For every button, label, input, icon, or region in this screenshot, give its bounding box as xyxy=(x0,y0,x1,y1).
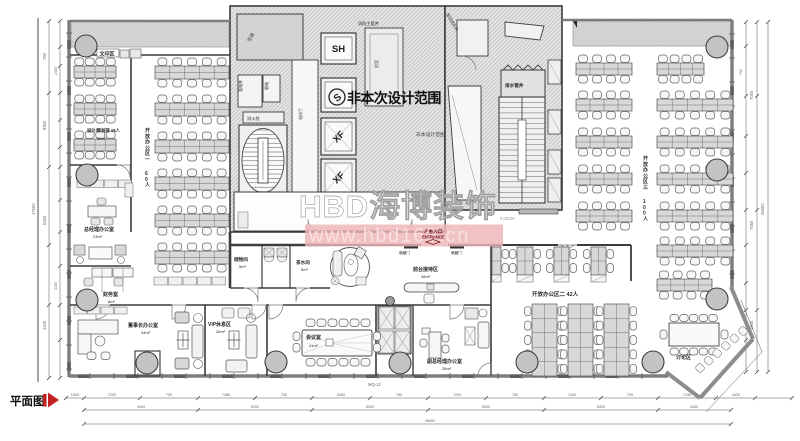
svg-text:电梯厅: 电梯厅 xyxy=(297,108,303,120)
svg-text:45600: 45600 xyxy=(425,419,436,423)
svg-text:750: 750 xyxy=(42,52,47,60)
svg-text:前室: 前室 xyxy=(373,60,379,68)
svg-text:44m²: 44m² xyxy=(141,330,151,335)
svg-text:8m²: 8m² xyxy=(108,299,116,304)
svg-text:消火栓: 消火栓 xyxy=(247,115,260,122)
svg-text:750: 750 xyxy=(739,69,743,75)
svg-text:文印区: 文印区 xyxy=(100,51,115,58)
svg-text:VIP休息区: VIP休息区 xyxy=(208,321,231,328)
svg-text:7486: 7486 xyxy=(222,393,230,397)
svg-text:www.hbd168.cn: www.hbd168.cn xyxy=(308,225,470,247)
svg-text:SH: SH xyxy=(332,44,345,55)
svg-text:消防主管井: 消防主管井 xyxy=(358,20,379,27)
svg-text:5.00UM: 5.00UM xyxy=(500,216,515,221)
svg-text:4430: 4430 xyxy=(690,405,698,409)
svg-text:4400: 4400 xyxy=(42,320,47,330)
svg-text:会议室: 会议室 xyxy=(305,334,321,341)
svg-text:8300: 8300 xyxy=(597,405,605,409)
svg-text:讨论区: 讨论区 xyxy=(676,354,691,361)
svg-text:前台接待区: 前台接待区 xyxy=(413,266,438,273)
svg-text:8300: 8300 xyxy=(42,120,47,130)
svg-text:强电井: 强电井 xyxy=(237,80,243,92)
svg-text:开放办公区二 42人: 开放办公区二 42人 xyxy=(532,290,579,298)
svg-text:董事长办公室: 董事长办公室 xyxy=(128,322,158,329)
svg-text:7400: 7400 xyxy=(568,393,576,397)
svg-text:排水管井: 排水管井 xyxy=(505,82,524,89)
svg-text:储物间: 储物间 xyxy=(234,256,248,263)
svg-text:39m²: 39m² xyxy=(97,136,107,141)
svg-text:700: 700 xyxy=(166,393,172,397)
svg-text:1500: 1500 xyxy=(71,393,79,397)
svg-text:5m²: 5m² xyxy=(239,264,247,269)
svg-text:8300: 8300 xyxy=(482,405,490,409)
svg-text:7200: 7200 xyxy=(453,393,461,397)
svg-text:3150: 3150 xyxy=(54,282,58,290)
svg-text:4430: 4430 xyxy=(732,393,740,397)
svg-text:28m²: 28m² xyxy=(442,366,452,371)
svg-text:2450: 2450 xyxy=(54,67,58,75)
svg-text:8300: 8300 xyxy=(366,405,374,409)
svg-text:700: 700 xyxy=(627,393,633,397)
svg-text:HBD海博装饰: HBD海博装饰 xyxy=(299,189,497,224)
svg-text:MQ-12: MQ-12 xyxy=(368,382,381,387)
svg-text:开放办公区一: 开放办公区一 xyxy=(144,127,151,163)
svg-text:5m²: 5m² xyxy=(301,267,309,272)
svg-text:ENTRANCE: ENTRANCE xyxy=(422,235,444,240)
svg-text:23m²: 23m² xyxy=(93,234,103,239)
svg-text:弱电: 弱电 xyxy=(263,82,269,90)
svg-text:6450: 6450 xyxy=(337,393,345,397)
svg-text:暗藏门: 暗藏门 xyxy=(451,250,462,255)
svg-text:7050: 7050 xyxy=(749,90,754,100)
svg-text:7200: 7200 xyxy=(108,393,116,397)
svg-text:45m²: 45m² xyxy=(421,274,431,279)
svg-text:非本次设计范围: 非本次设计范围 xyxy=(347,90,441,106)
svg-text:副总经理办公室: 副总经理办公室 xyxy=(427,358,462,365)
svg-text:非本设计范围: 非本设计范围 xyxy=(416,131,445,138)
svg-text:47600: 47600 xyxy=(31,203,36,215)
svg-text:平面图: 平面图 xyxy=(10,394,45,408)
svg-text:茶水间: 茶水间 xyxy=(295,259,310,266)
svg-text:750: 750 xyxy=(281,393,287,397)
svg-text:6450: 6450 xyxy=(42,215,47,225)
svg-text:45600: 45600 xyxy=(760,203,765,215)
svg-text:暗藏门: 暗藏门 xyxy=(399,250,410,255)
svg-text:7050: 7050 xyxy=(749,220,754,230)
svg-text:41m²: 41m² xyxy=(309,343,319,348)
svg-text:设计/策划部 18人: 设计/策划部 18人 xyxy=(87,127,121,134)
svg-text:4400: 4400 xyxy=(137,405,145,409)
svg-text:28m²: 28m² xyxy=(216,329,226,334)
svg-text:7430: 7430 xyxy=(683,393,691,397)
svg-text:财务室: 财务室 xyxy=(102,291,118,298)
svg-text:750: 750 xyxy=(512,393,518,397)
svg-text:总经理办公室: 总经理办公室 xyxy=(84,226,114,233)
svg-text:8300: 8300 xyxy=(251,405,259,409)
svg-text:开放办公区三: 开放办公区三 xyxy=(642,155,649,191)
svg-text:750: 750 xyxy=(396,393,402,397)
